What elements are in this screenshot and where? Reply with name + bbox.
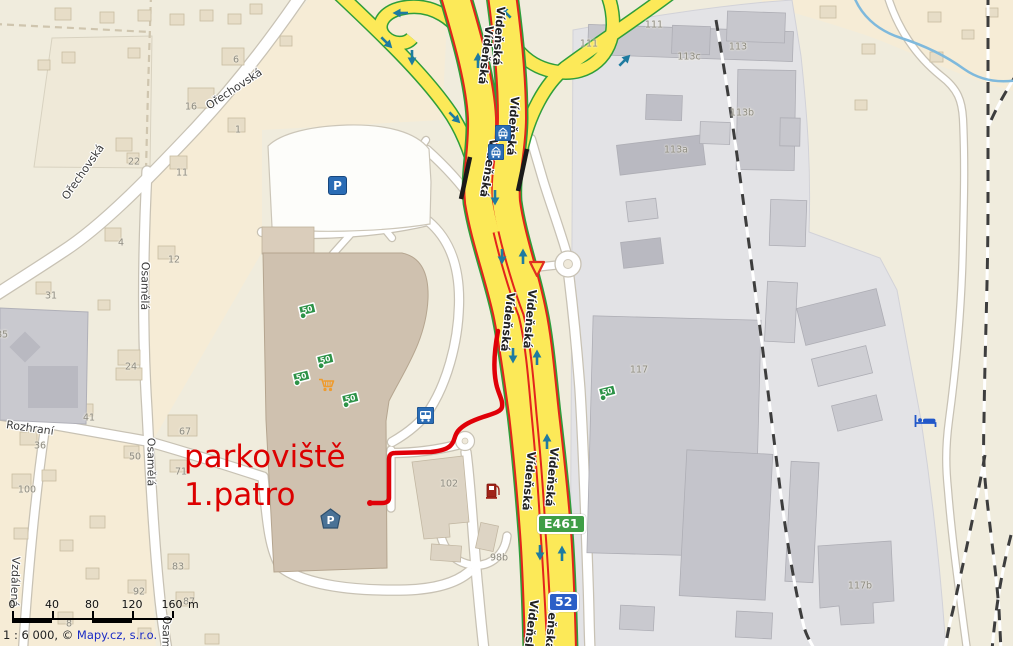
- shop-money-icon[interactable]: 50: [340, 390, 361, 413]
- shop-money-icon[interactable]: 50: [597, 383, 618, 406]
- building-number: 4: [118, 238, 124, 249]
- scale-segment: [132, 618, 172, 620]
- parking-letter: P: [333, 179, 342, 193]
- factory-85: [0, 308, 88, 424]
- shop-money-icon[interactable]: 50: [291, 368, 312, 391]
- scale-tick-label: 160: [162, 598, 183, 611]
- annotation-line1: parkoviště: [184, 438, 346, 476]
- building-number: 1: [235, 125, 241, 136]
- building-number: 83: [172, 562, 184, 573]
- building-number: 102: [440, 479, 458, 490]
- scale-segment: [52, 618, 92, 620]
- building-number: 6: [233, 55, 239, 66]
- tram-stop-icon[interactable]: [495, 125, 511, 145]
- scale-ratio-text: 1 : 6 000, ©: [3, 628, 73, 642]
- hotel-icon[interactable]: [914, 414, 937, 433]
- building-number: 16: [185, 102, 197, 113]
- scale-unit: m: [188, 598, 199, 611]
- map-attribution: 1 : 6 000, © Mapy.cz, s.r.o.: [3, 628, 157, 642]
- building-number: 113b: [730, 108, 754, 119]
- building-number: 22: [128, 157, 140, 168]
- scale-tick-label: 120: [122, 598, 143, 611]
- building-number: 36: [34, 441, 46, 452]
- building-number: 117b: [848, 581, 872, 592]
- mapycz-link[interactable]: Mapy.cz, s.r.o.: [77, 628, 157, 642]
- scale-tick: [92, 611, 94, 618]
- scale-tick-label: 0: [9, 598, 16, 611]
- building-number: 50: [129, 452, 141, 463]
- scale-tick: [172, 611, 174, 618]
- scale-segment: [92, 618, 132, 623]
- building-number: 111: [645, 20, 663, 31]
- building-number: 92: [133, 587, 145, 598]
- bus-stop-icon[interactable]: [417, 407, 434, 428]
- scale-tick: [12, 611, 14, 618]
- building-number: 12: [168, 255, 180, 266]
- shopping-cart-icon[interactable]: [318, 377, 336, 398]
- building-number: 100: [18, 485, 36, 496]
- scale-tick: [132, 611, 134, 618]
- street-label-osamela: Osamělá: [138, 262, 152, 311]
- route-shield-e461: E461: [537, 514, 586, 534]
- building-number: 85: [0, 330, 8, 341]
- building-number: 24: [125, 362, 137, 373]
- building-number: 113c: [677, 52, 700, 63]
- building-number: 111: [580, 39, 598, 50]
- building-number: 41: [83, 413, 95, 424]
- building-number: 31: [45, 291, 57, 302]
- route-annotation: parkoviště 1.patro: [184, 438, 346, 514]
- parking-icon[interactable]: P: [328, 176, 347, 195]
- parking-lot-area: [268, 125, 431, 231]
- shop-money-icon[interactable]: 50: [315, 351, 336, 374]
- scale-segment: [12, 618, 52, 623]
- scale-tick: [52, 611, 54, 618]
- building-number: 98b: [490, 553, 508, 564]
- svg-text:P: P: [326, 514, 334, 527]
- building-number: 11: [176, 168, 188, 179]
- building-number: 67: [179, 427, 191, 438]
- scale-tick-label: 40: [45, 598, 59, 611]
- shop-money-icon[interactable]: 50: [297, 301, 318, 324]
- fuel-station-icon[interactable]: [485, 482, 501, 503]
- map-viewport[interactable]: Vídeňská Vídeňská Vídeňská Vídeňská Víde…: [0, 0, 1013, 646]
- scale-bar: 0 40 80 120 160 m: [8, 598, 218, 628]
- tram-stop-icon[interactable]: [488, 144, 504, 164]
- scale-tick-label: 80: [85, 598, 99, 611]
- street-label-osamela: Osamělá: [145, 438, 158, 486]
- route-shield-52: 52: [548, 592, 579, 612]
- building-number: 113: [729, 42, 747, 53]
- building-number: 117: [630, 365, 648, 376]
- annotation-line2: 1.patro: [184, 476, 346, 514]
- building-number: 113a: [664, 145, 688, 156]
